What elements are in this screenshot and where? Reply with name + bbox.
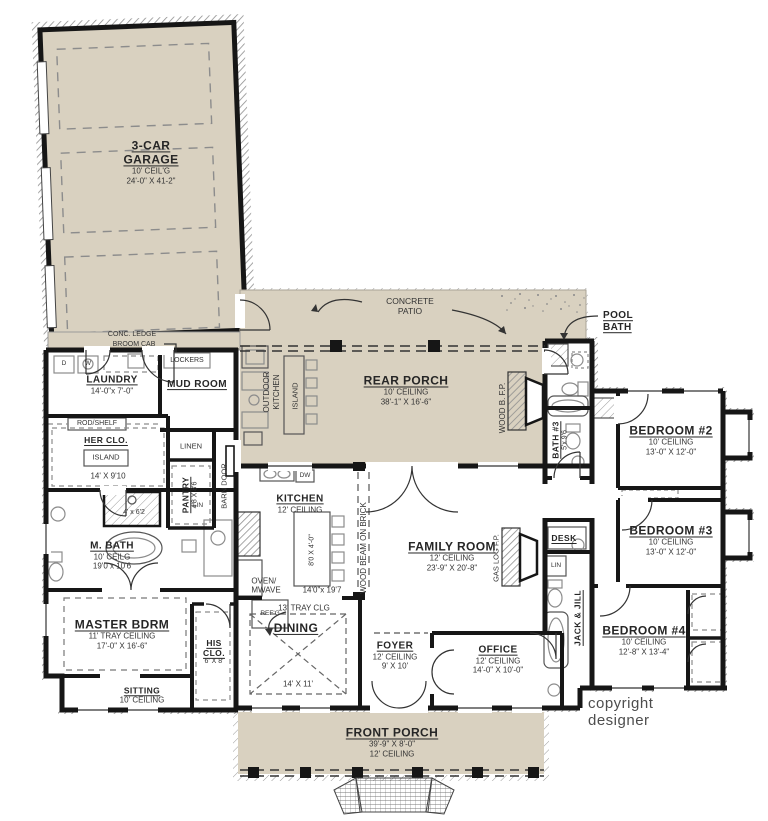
lockers-label: LOCKERS [170, 357, 203, 365]
her-closet-dims: 14' X 9'10 [90, 471, 125, 480]
porch-post [428, 340, 440, 352]
broom-cab-label: BROOM CAB [113, 341, 156, 349]
her-closet-label: HER CLO. [84, 435, 128, 445]
floor-plan: 3-CAR GARAGE 10' CEIL'G 24'-0" X 41-2" C… [0, 0, 768, 821]
lin-hall-label: LIN [551, 562, 561, 570]
office-label: OFFICE 12' CEILING 14'-0" X 10'-0" [473, 645, 524, 676]
dining-label: DINING [274, 621, 318, 635]
kitchen-range [238, 512, 260, 556]
refg-label: REF'G [260, 610, 279, 618]
rear-porch-label: REAR PORCH 10' CEILING 38'-1" X 16'-6" [364, 373, 449, 406]
kitchen-label: KITCHEN 12' CEILING [276, 493, 323, 514]
bath3-label: BATH #3 5'x 9'6 [550, 421, 569, 459]
rod-shelf-label: ROD/SHELF [77, 420, 117, 428]
laundry-label: LAUNDRY 14'-0"x 7'-0" [86, 374, 137, 395]
dw-label: DW [300, 472, 311, 480]
concrete-patio-label: CONCRETE PATIO [386, 296, 434, 316]
oven-mwave-label: OVEN/ MWAVE [251, 577, 280, 596]
master-bath-label: M. BATH 10' CEILG 19'0 x 10'6 [90, 541, 134, 572]
front-porch-label: FRONT PORCH 39'-9" X 8'-0" 12' CEILING [346, 725, 438, 758]
family-room-label: FAMILY ROOM 12' CEILING 23'-9" X 20'-8" [408, 539, 496, 572]
wood-beam-label: WOOD BEAM ON BRICK [359, 502, 369, 594]
dryer-label: D [62, 360, 67, 368]
porch-post [330, 340, 342, 352]
linen-label: LINEN [180, 443, 202, 452]
bedroom2-label: BEDROOM #2 10' CEILING 13'-0" X 12'-0" [629, 423, 712, 456]
sitting-label: SITTING 10' CEILING [120, 685, 165, 704]
her-closet-island-label: ISLAND [92, 454, 119, 463]
dining-dims: 14' X 11' [283, 679, 313, 688]
his-closet-label: HIS CLO. 6' X 8' [203, 638, 225, 666]
bedroom3-label: BEDROOM #3 10' CEILING 13'-0" X 12'-0" [629, 523, 712, 556]
pool-bath-label: POOL BATH [603, 310, 633, 334]
master-bedroom-label: MASTER BDRM 11' TRAY CEILING 17'-0" X 16… [75, 617, 169, 650]
wood-fireplace-label: WOOD B. F.P. [498, 383, 508, 434]
porch-island-label: ISLAND [290, 382, 299, 409]
mud-room-label: MUD ROOM [167, 379, 227, 391]
foyer-label: FOYER 12' CEILING 9' X 10' [373, 641, 418, 672]
kitchen-island-dims: 8'0 X 4'-0" [309, 534, 318, 566]
outdoor-kitchen-label: OUTDOOR KITCHEN [262, 372, 282, 413]
barn-door-label: BARN DOOR [219, 463, 228, 508]
kitchen-dims: 14'0"x 19'7 [303, 585, 342, 594]
shower-dims: 4' x 6'2 [123, 509, 145, 517]
front-steps [334, 778, 454, 814]
bedroom4-label: BEDROOM #4 10' CEILING 12'-8" X 13'-4" [602, 623, 685, 656]
dining-ceiling-label: 13' TRAY CLG [278, 603, 330, 612]
jack-jill-label: JACK & JILL [573, 590, 584, 646]
copyright-text: copyright designer [588, 695, 708, 729]
gas-fireplace-label: GAS LOG F.P. [491, 534, 500, 582]
washer-label: W [85, 360, 91, 368]
conc-ledge-label: CONC. LEDGE [108, 331, 156, 339]
desk-label: DESK [551, 533, 576, 543]
lin-bath-label: LIN [193, 502, 203, 510]
garage-label: 3-CAR GARAGE 10' CEIL'G 24'-0" X 41-2" [113, 138, 189, 185]
